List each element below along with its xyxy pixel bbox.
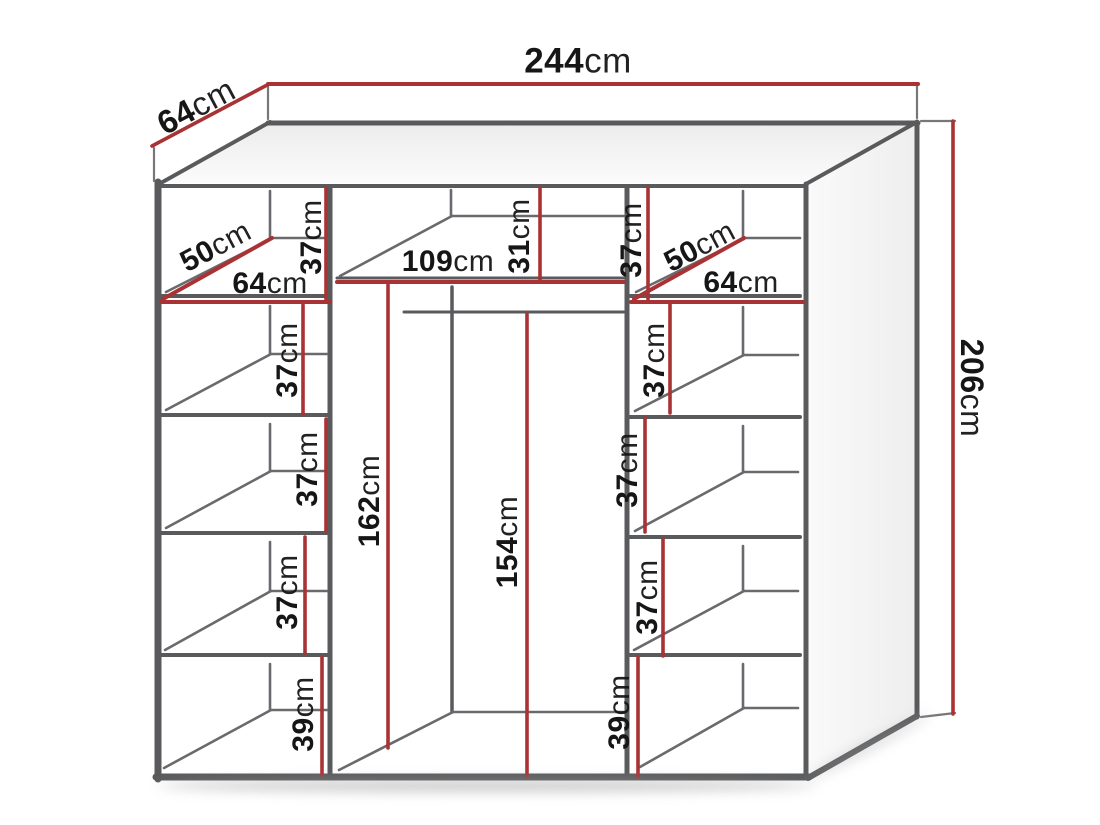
right-comp-label-3: 37cm: [613, 432, 643, 507]
top-face: [159, 122, 917, 184]
left-comp-label-5: 39cm: [289, 676, 319, 751]
right-comp-label-2: 37cm: [640, 322, 670, 397]
overall-width-label: 244cm: [524, 44, 632, 79]
wardrobe-dimension-diagram: 244cm 64cm 206cm 50cm 64cm 37cm 37cm 37c…: [0, 0, 1100, 825]
right-comp-label-1: 37cm: [617, 202, 647, 277]
left-comp-label-4: 37cm: [273, 554, 303, 629]
left-comp-label-3: 37cm: [293, 431, 323, 506]
center-top-height-label: 31cm: [505, 198, 535, 273]
left-comp-label-1: 37cm: [297, 199, 327, 274]
right-comp-label-5: 39cm: [605, 674, 635, 749]
right-comp-label-4: 37cm: [633, 559, 663, 634]
center-shelf-width-label: 109cm: [402, 247, 495, 277]
center-rail-height-label: 154cm: [493, 496, 523, 589]
right-side-face: [806, 122, 917, 779]
left-comp-label-2: 37cm: [273, 322, 303, 397]
right-shelf-width-label: 64cm: [703, 268, 778, 298]
floor-shadow: [156, 779, 816, 792]
center-left-height-label: 162cm: [355, 455, 385, 548]
overall-height-label: 206cm: [956, 339, 988, 438]
